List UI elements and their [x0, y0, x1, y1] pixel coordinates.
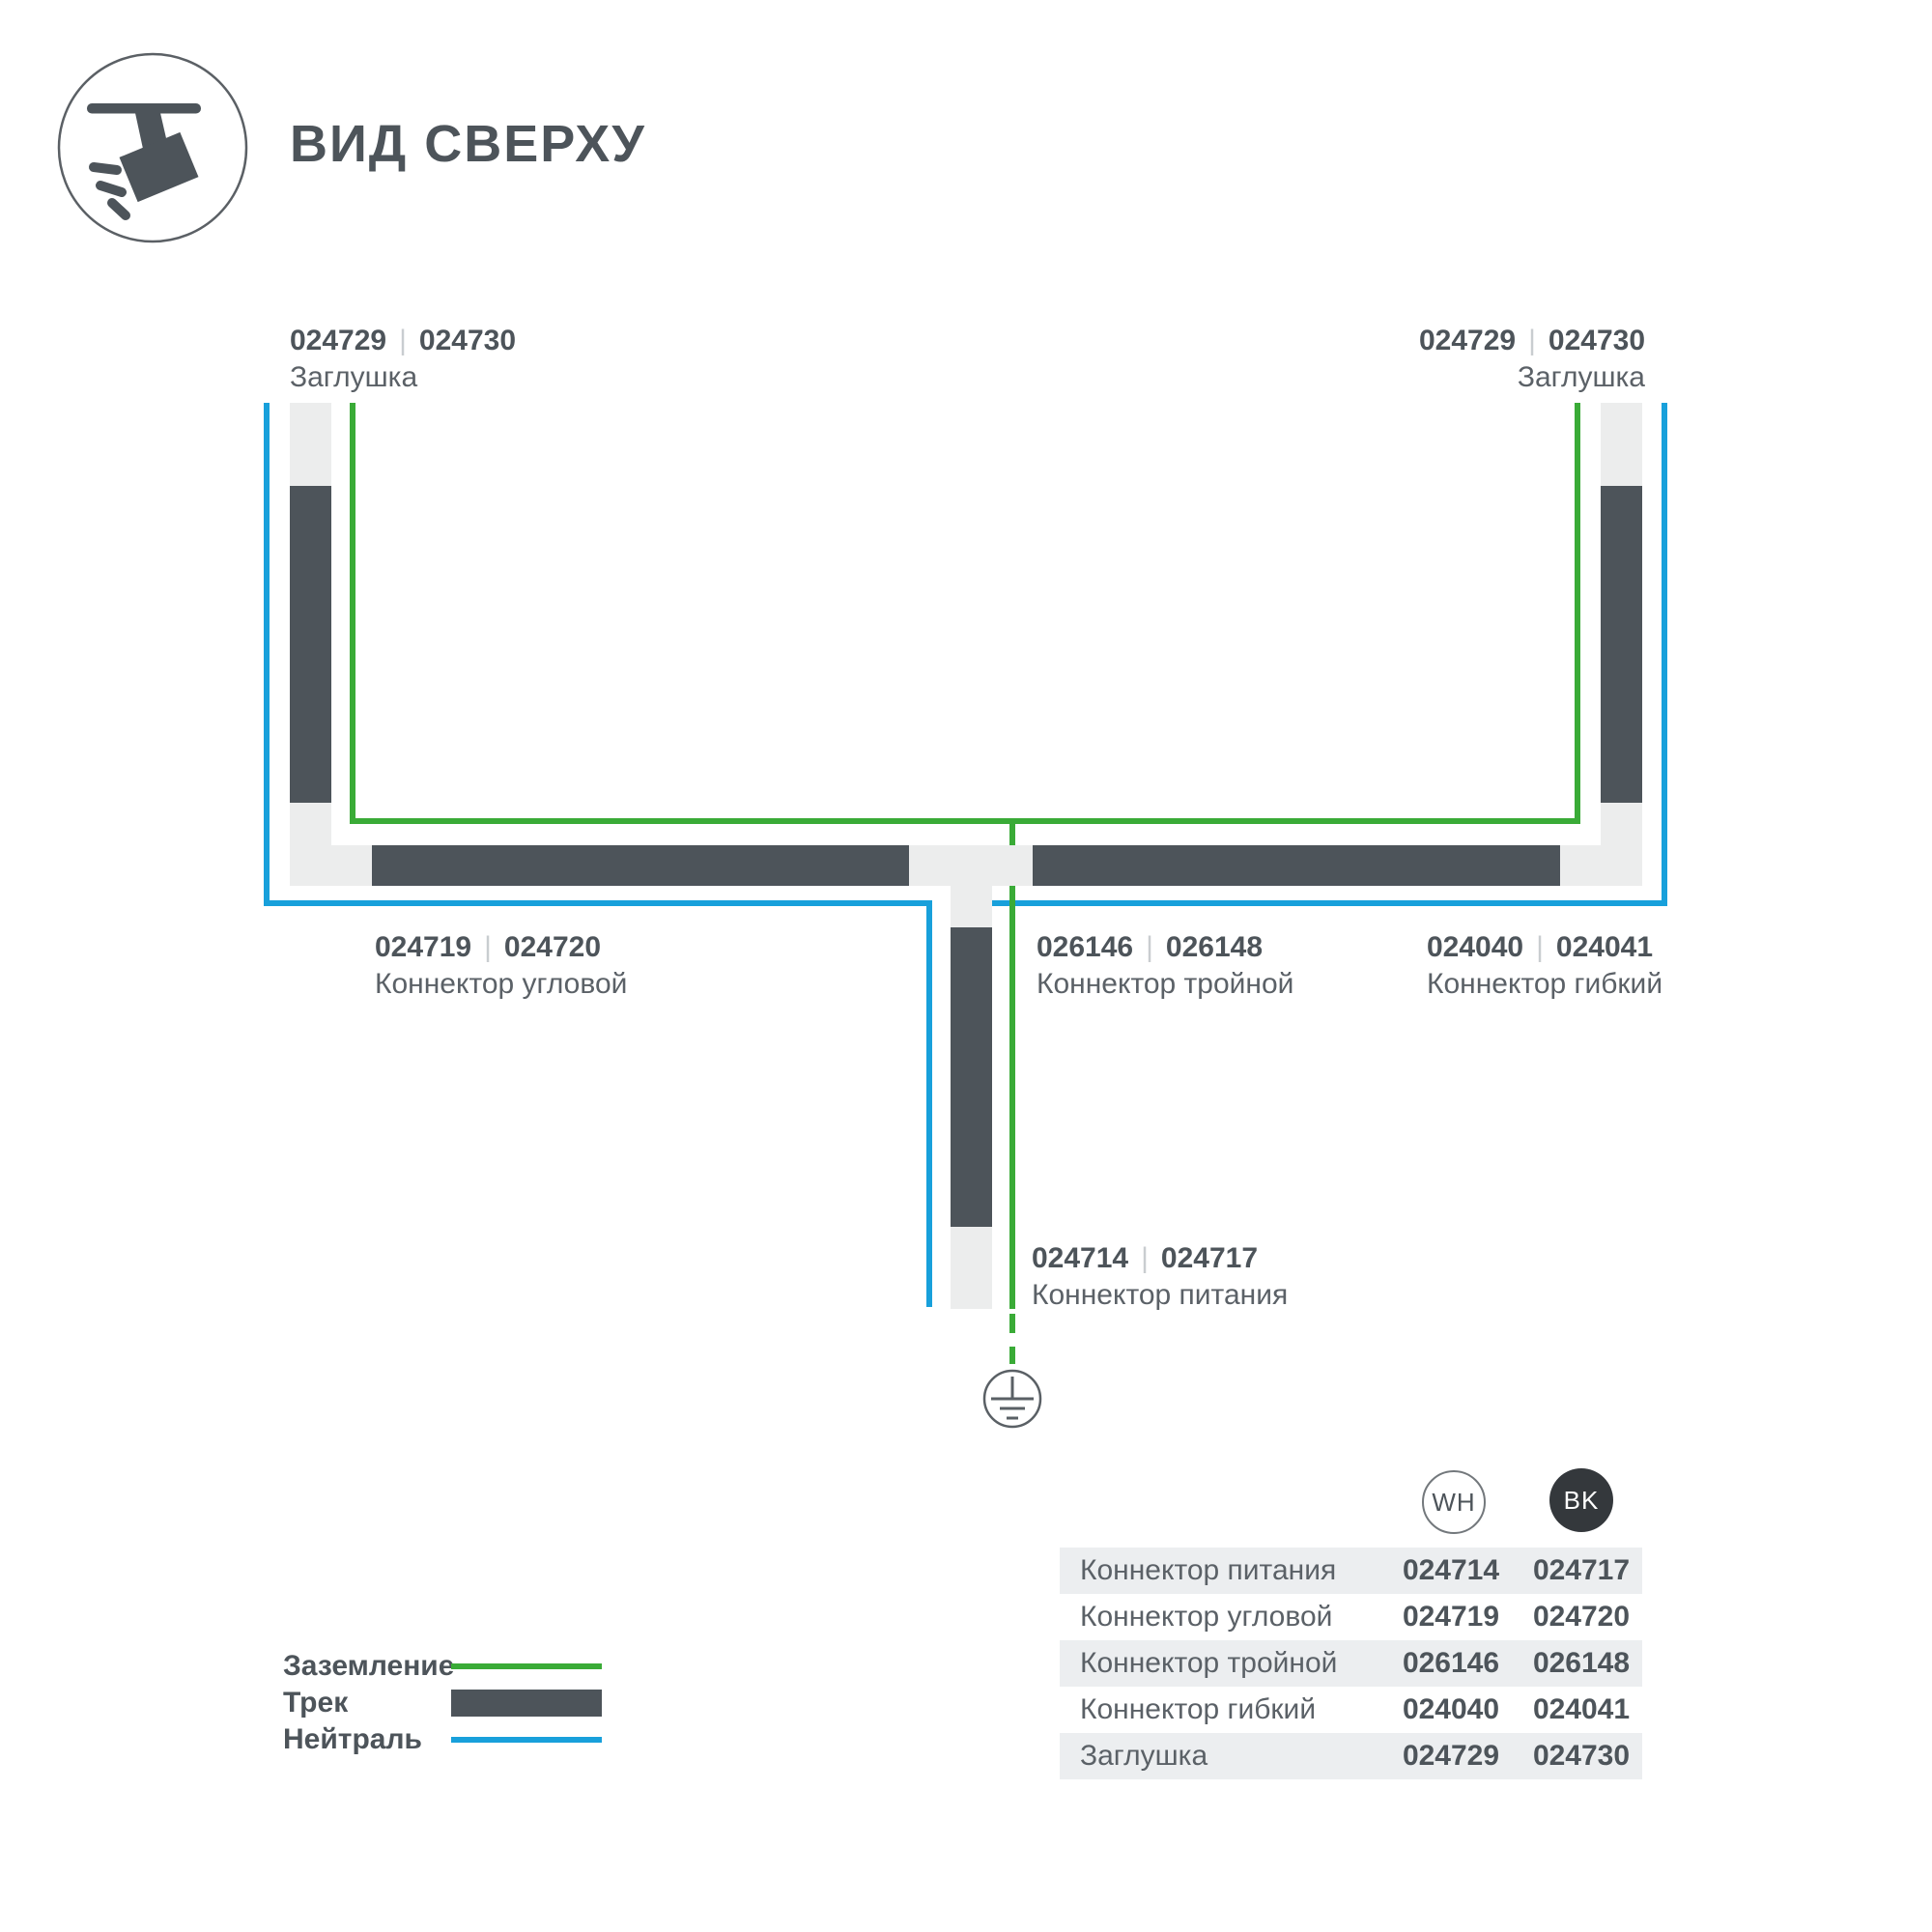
callout-codes: 024719|024720 — [375, 929, 627, 966]
callout-endcap-right: 024729|024730 Заглушка — [1419, 323, 1645, 396]
neutral-line-right-vertical — [1662, 403, 1667, 906]
track-swatch — [451, 1690, 602, 1717]
part-code-bk: 026148 — [1509, 1647, 1654, 1680]
part-name: Коннектор угловой — [1080, 1601, 1332, 1634]
part-name: Коннектор питания — [1080, 1554, 1336, 1587]
callout-codes: 024729|024730 — [290, 323, 516, 359]
table-row: Коннектор тройной 026146 026148 — [1060, 1640, 1642, 1687]
code-wh: 024729 — [290, 325, 386, 356]
callout-codes: 024714|024717 — [1032, 1240, 1288, 1277]
legend-item-ground: Заземление — [283, 1647, 602, 1686]
code-wh: 024040 — [1427, 931, 1523, 963]
neutral-line-middle-vertical — [926, 900, 932, 1307]
callout-name: Коннектор тройной — [1037, 966, 1293, 1003]
callout-codes: 026146|026148 — [1037, 929, 1293, 966]
color-badge-black: BK — [1549, 1468, 1613, 1532]
callout-flex-connector: 024040|024041 Коннектор гибкий — [1427, 929, 1662, 1003]
table-row: Коннектор гибкий 024040 024041 — [1060, 1687, 1642, 1733]
ground-line-dashed — [1009, 1314, 1015, 1364]
ground-line-right-vertical — [1575, 403, 1580, 824]
legend-label: Заземление — [283, 1650, 454, 1683]
part-code-bk: 024041 — [1509, 1693, 1654, 1726]
page-title: ВИД СВЕРХУ — [290, 118, 646, 170]
flex-connector-right-vertical — [1601, 803, 1642, 886]
legend-item-neutral: Нейтраль — [283, 1720, 602, 1759]
ground-line-left-vertical — [350, 403, 355, 824]
callout-corner-connector: 024719|024720 Коннектор угловой — [375, 929, 627, 1003]
code-bk: 024041 — [1556, 931, 1653, 963]
track-middle-vertical — [951, 927, 992, 1227]
ground-icon — [978, 1364, 1047, 1434]
part-name: Коннектор тройной — [1080, 1647, 1337, 1680]
part-code-wh: 024729 — [1378, 1740, 1523, 1773]
code-bk: 024717 — [1161, 1242, 1258, 1274]
corner-connector-left-horizontal — [290, 845, 372, 886]
code-wh: 024719 — [375, 931, 471, 963]
part-code-wh: 026146 — [1378, 1647, 1523, 1680]
callout-name: Коннектор питания — [1032, 1277, 1288, 1314]
endcap-top-right — [1601, 403, 1642, 486]
ground-line-middle-vertical — [1009, 818, 1015, 1309]
part-name: Коннектор гибкий — [1080, 1693, 1316, 1726]
callout-power-connector: 024714|024717 Коннектор питания — [1032, 1240, 1288, 1314]
callout-name: Коннектор угловой — [375, 966, 627, 1003]
code-separator: | — [1523, 931, 1556, 963]
code-separator: | — [1133, 931, 1166, 963]
code-bk: 026148 — [1166, 931, 1263, 963]
legend-label: Нейтраль — [283, 1723, 422, 1756]
callout-codes: 024040|024041 — [1427, 929, 1662, 966]
legend-item-track: Трек — [283, 1684, 602, 1722]
callout-name: Заглушка — [1419, 359, 1645, 396]
endcap-top-left — [290, 403, 331, 486]
tee-connector-horizontal — [909, 845, 1033, 886]
callout-codes: 024729|024730 — [1419, 323, 1645, 359]
track-left-horizontal — [372, 845, 909, 886]
table-row: Коннектор угловой 024719 024720 — [1060, 1594, 1642, 1640]
neutral-line-right-horizontal — [992, 900, 1667, 906]
table-row: Коннектор питания 024714 024717 — [1060, 1548, 1642, 1594]
code-wh: 026146 — [1037, 931, 1133, 963]
ground-line-horizontal — [350, 818, 1580, 824]
code-bk: 024730 — [419, 325, 516, 356]
parts-table: Коннектор питания 024714 024717 Коннекто… — [1060, 1548, 1642, 1779]
part-code-wh: 024714 — [1378, 1554, 1523, 1587]
neutral-line-swatch — [451, 1737, 602, 1743]
callout-triple-connector: 026146|026148 Коннектор тройной — [1037, 929, 1293, 1003]
code-separator: | — [471, 931, 504, 963]
track-right-vertical — [1601, 486, 1642, 803]
part-code-bk: 024720 — [1509, 1601, 1654, 1634]
code-separator: | — [1128, 1242, 1161, 1274]
code-wh: 024714 — [1032, 1242, 1128, 1274]
tee-connector-vertical — [951, 886, 992, 927]
callout-name: Коннектор гибкий — [1427, 966, 1662, 1003]
part-name: Заглушка — [1080, 1740, 1207, 1773]
track-right-horizontal — [1033, 845, 1560, 886]
part-code-bk: 024717 — [1509, 1554, 1654, 1587]
page: ВИД СВЕРХУ 024729|024730 — [0, 0, 1932, 1932]
table-row: Заглушка 024729 024730 — [1060, 1733, 1642, 1779]
code-wh: 024729 — [1419, 325, 1516, 356]
code-bk: 024720 — [504, 931, 601, 963]
neutral-line-left-horizontal — [264, 900, 932, 906]
callout-name: Заглушка — [290, 359, 516, 396]
track-left-vertical — [290, 486, 331, 803]
color-badge-white: WH — [1422, 1470, 1486, 1534]
code-bk: 024730 — [1548, 325, 1645, 356]
code-separator: | — [1516, 325, 1548, 356]
track-light-icon — [56, 51, 249, 244]
part-code-wh: 024040 — [1378, 1693, 1523, 1726]
code-separator: | — [386, 325, 419, 356]
part-code-bk: 024730 — [1509, 1740, 1654, 1773]
callout-endcap-left: 024729|024730 Заглушка — [290, 323, 516, 396]
power-connector-endcap — [951, 1227, 992, 1309]
ground-line-swatch — [451, 1663, 602, 1669]
part-code-wh: 024719 — [1378, 1601, 1523, 1634]
legend-label: Трек — [283, 1687, 348, 1719]
neutral-line-left-vertical — [264, 403, 270, 906]
